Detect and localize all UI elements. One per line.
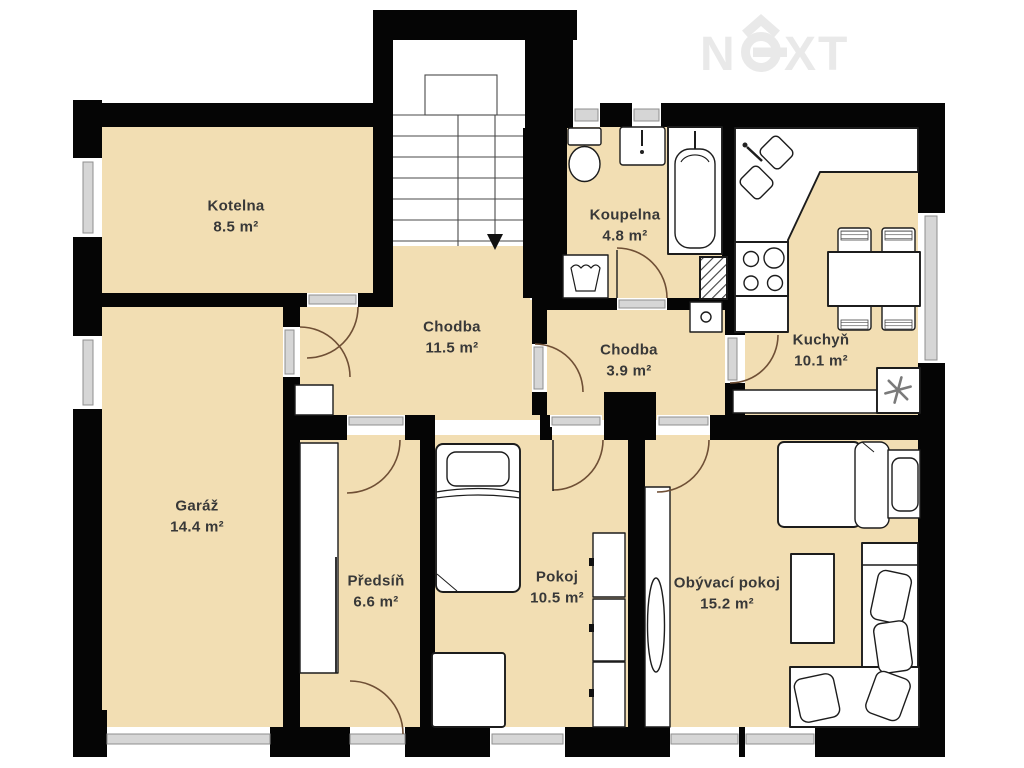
chair (838, 304, 871, 330)
wardrobe (300, 443, 338, 673)
door-sill (659, 417, 708, 425)
double-bed-icon (778, 442, 920, 528)
room-area: 3.9 m² (600, 361, 658, 382)
staircase (393, 40, 525, 250)
dining-table (828, 252, 920, 306)
room-label-koupelna: Koupelna 4.8 m² (590, 205, 661, 248)
coffee-table (791, 554, 834, 643)
room-area: 10.1 m² (793, 351, 850, 372)
door-sill (285, 330, 294, 374)
door-sill (619, 300, 665, 308)
room-label-chodba-horni: Chodba 11.5 m² (423, 317, 481, 360)
door-sill (309, 295, 356, 304)
laundry-basket-icon (563, 255, 608, 298)
ventilation-shaft (700, 257, 727, 299)
room-area: 6.6 m² (347, 592, 404, 613)
room-area: 4.8 m² (590, 226, 661, 247)
single-bed-icon (436, 444, 520, 592)
room-area: 15.2 m² (674, 594, 780, 615)
door-sill (728, 338, 737, 380)
bathtub-icon (668, 127, 722, 254)
floor-plan-drawing: N XT (0, 0, 1024, 768)
window (83, 340, 93, 405)
room-name: Předsíň (347, 571, 404, 592)
room-label-pokoj: Pokoj 10.5 m² (530, 567, 584, 610)
room-label-kotelna: Kotelna 8.5 m² (207, 196, 264, 239)
room-label-garaz: Garáž 14.4 m² (170, 496, 224, 539)
washbasin-icon (620, 127, 665, 165)
fan-icon (877, 368, 920, 413)
door-sill (349, 417, 403, 425)
room-name: Chodba (423, 317, 481, 338)
room-label-chodba-dolni: Chodba 3.9 m² (600, 340, 658, 383)
floor-plan: N XT Kotelna 8.5 m² Koupelna 4.8 m² Kuch… (0, 0, 1024, 768)
room-label-obyvaci-pokoj: Obývací pokoj 15.2 m² (674, 573, 780, 616)
window (746, 734, 814, 744)
next-watermark: N XT (700, 20, 849, 81)
window (925, 216, 937, 360)
tv-icon (648, 578, 665, 672)
watermark-letters-xt: XT (784, 28, 849, 81)
desk (432, 653, 505, 727)
shelf-unit (589, 533, 625, 727)
window (575, 109, 598, 121)
door-sill (534, 347, 543, 389)
toilet-icon (568, 128, 601, 182)
tv-sideboard (645, 487, 670, 727)
chair (882, 304, 915, 330)
window (671, 734, 738, 744)
room-label-predsin: Předsíň 6.6 m² (347, 571, 404, 614)
boiler-icon (690, 302, 722, 332)
room-name: Kotelna (207, 196, 264, 217)
room-area: 8.5 m² (207, 217, 264, 238)
kitchen-bench (733, 390, 877, 413)
watermark-letter-n: N (700, 28, 737, 81)
chair (882, 228, 915, 254)
room-name: Pokoj (530, 567, 584, 588)
stove-icon (735, 242, 788, 296)
room-name: Obývací pokoj (674, 573, 780, 594)
garage-door-opening (107, 734, 270, 744)
room-name: Kuchyň (793, 330, 850, 351)
room-area: 11.5 m² (423, 338, 481, 359)
room-name: Garáž (170, 496, 224, 517)
window (492, 734, 563, 744)
room-area: 10.5 m² (530, 588, 584, 609)
room-area: 14.4 m² (170, 517, 224, 538)
chair (838, 228, 871, 254)
window (83, 162, 93, 233)
door-sill (350, 734, 405, 744)
room-name: Chodba (600, 340, 658, 361)
watermark-caret-icon (745, 20, 777, 34)
room-label-kuchyn: Kuchyň 10.1 m² (793, 330, 850, 373)
door-sill (552, 417, 600, 425)
room-name: Koupelna (590, 205, 661, 226)
window (634, 109, 659, 121)
hall-cabinet (295, 385, 333, 415)
